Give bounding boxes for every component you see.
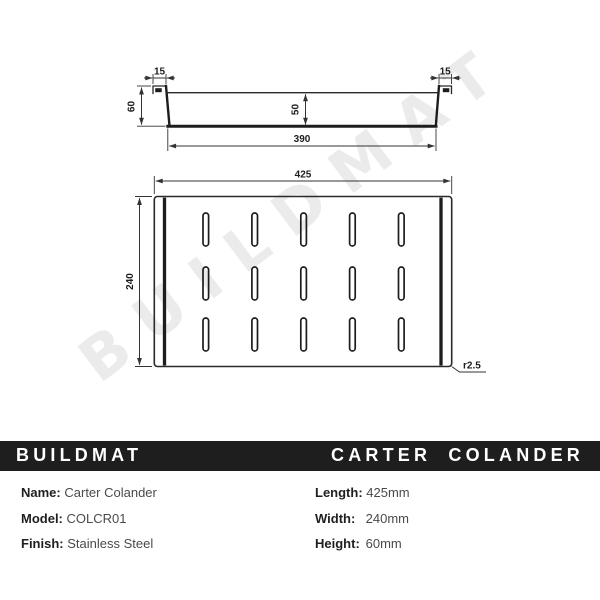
spec-row-name: Name: Carter Colander — [21, 486, 157, 500]
side-view-drawing: 15 15 60 50 390 — [127, 67, 461, 152]
spec-label-name: Name: — [21, 485, 61, 500]
spec-sheet-page: BUILDMAT 15 — [0, 0, 600, 600]
spec-value-height: 60mm — [366, 536, 402, 551]
brand-bar: BUILDMAT CARTER COLANDER — [0, 441, 600, 471]
spec-label-model: Model: — [21, 511, 63, 526]
spec-row-finish: Finish: Stainless Steel — [21, 537, 157, 551]
side-right-wall — [436, 86, 439, 126]
spec-value-model: COLCR01 — [67, 511, 127, 526]
dim-height: 60 — [127, 101, 138, 113]
top-view-drawing: 425 240 r2.5 — [125, 170, 486, 373]
spec-value-finish: Stainless Steel — [67, 536, 153, 551]
product-name: CARTER COLANDER — [331, 445, 584, 466]
spec-value-length: 425mm — [366, 485, 409, 500]
dim-base: 390 — [294, 134, 311, 145]
brand-name: BUILDMAT — [16, 445, 142, 466]
dim-depth: 50 — [291, 104, 302, 116]
spec-row-width: Width: 240mm — [315, 512, 410, 526]
spec-label-finish: Finish: — [21, 536, 64, 551]
spec-value-name: Carter Colander — [64, 485, 157, 500]
drain-slots — [203, 213, 404, 351]
spec-row-length: Length: 425mm — [315, 486, 410, 500]
technical-drawings: 15 15 60 50 390 — [0, 0, 600, 440]
side-left-wall — [166, 86, 170, 126]
spec-row-model: Model: COLCR01 — [21, 512, 157, 526]
dim-width: 240 — [125, 273, 136, 290]
spec-row-height: Height: 60mm — [315, 537, 410, 551]
dim-flange-left: 15 — [154, 67, 166, 78]
spec-label-width: Width: — [315, 512, 362, 526]
spec-label-length: Length: — [315, 486, 363, 500]
top-view-outline — [154, 197, 451, 367]
side-right-hook — [443, 88, 450, 92]
spec-column-right: Length: 425mm Width: 240mm Height: 60mm — [315, 486, 410, 563]
spec-label-height: Height: — [315, 537, 362, 551]
dim-radius: r2.5 — [463, 361, 481, 372]
side-left-hook — [155, 88, 162, 92]
dim-flange-right: 15 — [440, 67, 452, 78]
spec-column-left: Name: Carter Colander Model: COLCR01 Fin… — [21, 486, 157, 563]
spec-value-width: 240mm — [366, 511, 409, 526]
dim-length: 425 — [295, 170, 312, 181]
